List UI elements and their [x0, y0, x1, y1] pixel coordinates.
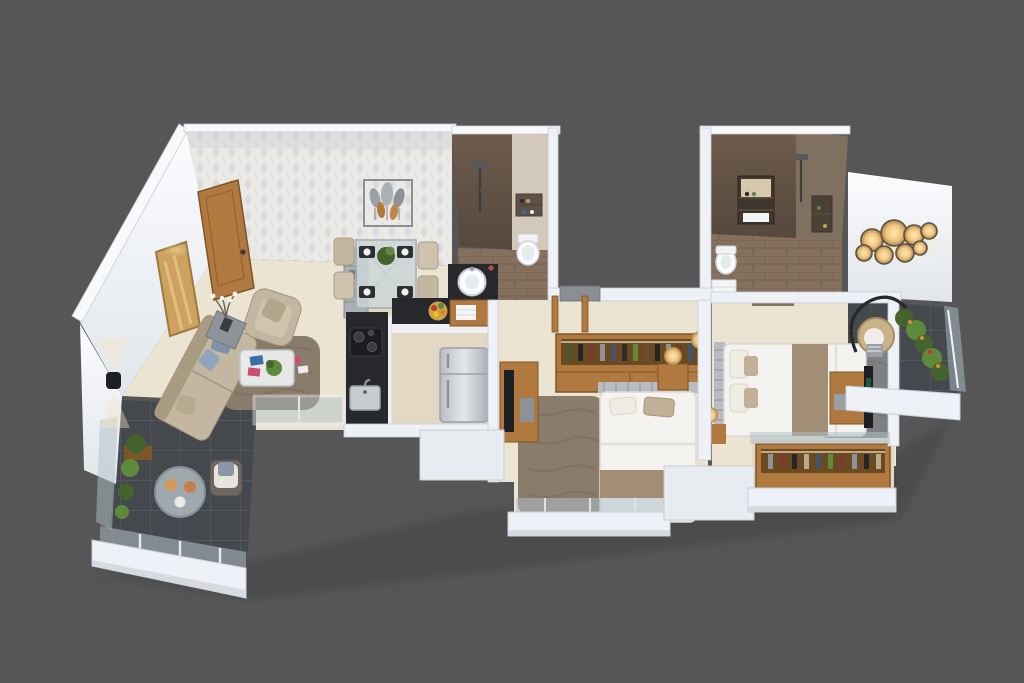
bath-niche-shelf: [516, 194, 542, 216]
bedside-lamp-glow: [664, 347, 682, 365]
door-frame-1: [552, 296, 558, 332]
bay-step-block: [420, 430, 504, 480]
dining-chair: [334, 238, 354, 265]
duct-window: [560, 286, 600, 301]
door-frame-2: [582, 296, 588, 332]
bedroom1-tv: [504, 370, 514, 432]
sliding-glass-door: [254, 396, 344, 424]
side-niche: [812, 196, 832, 232]
bed1-pillow: [609, 397, 637, 416]
outer-wall-top: [184, 124, 456, 132]
refrigerator: [440, 348, 488, 422]
masterbath-top-wall: [700, 126, 850, 134]
balcony-table: [155, 467, 205, 517]
bath-east-wall: [548, 128, 558, 294]
bedroom1-tv-unit: [500, 362, 538, 442]
coffee-table: [240, 350, 294, 386]
counter-flower: [488, 265, 493, 270]
dining-chair: [418, 242, 438, 269]
snack-plate-3: [175, 497, 186, 508]
fascia-shade: [508, 530, 670, 536]
dining-table: [356, 240, 416, 308]
master-toilet: [716, 246, 736, 274]
fascia-shade: [748, 506, 896, 512]
master-bay-glass: [750, 432, 890, 444]
floor-plan-canvas: [0, 0, 1024, 683]
master-wardrobe: [756, 444, 890, 490]
snack-plate-1: [165, 479, 177, 491]
coffee-table-book-pink: [248, 367, 261, 376]
master-pillow-accent-1: [744, 356, 758, 376]
bay-step-block-2: [664, 466, 754, 520]
magazine-white: [298, 365, 309, 373]
bath-top-wall: [452, 126, 560, 134]
balcony-chair: [210, 460, 242, 496]
wall-hung-toilet: [517, 234, 539, 265]
bubble-wall-light-cluster: [846, 218, 946, 266]
fruit-bowl: [429, 302, 448, 321]
floor-plan-render: [0, 0, 1024, 683]
coffee-table-book-blue: [250, 355, 264, 366]
wallpaper-shading: [186, 130, 452, 150]
towel: [456, 305, 476, 320]
door-handle: [240, 249, 245, 254]
gas-hob: [350, 328, 382, 356]
master-runner: [792, 344, 828, 436]
niche-towels: [743, 213, 769, 222]
master-pillow-accent-2: [744, 388, 758, 408]
snack-plate-2: [184, 481, 196, 493]
bedroom-divider-wall: [698, 300, 711, 460]
lit-niche: [738, 176, 774, 224]
bed1-pillow-accent: [643, 397, 674, 418]
masterbath-west-wall: [700, 128, 711, 294]
dining-chair: [334, 272, 354, 299]
